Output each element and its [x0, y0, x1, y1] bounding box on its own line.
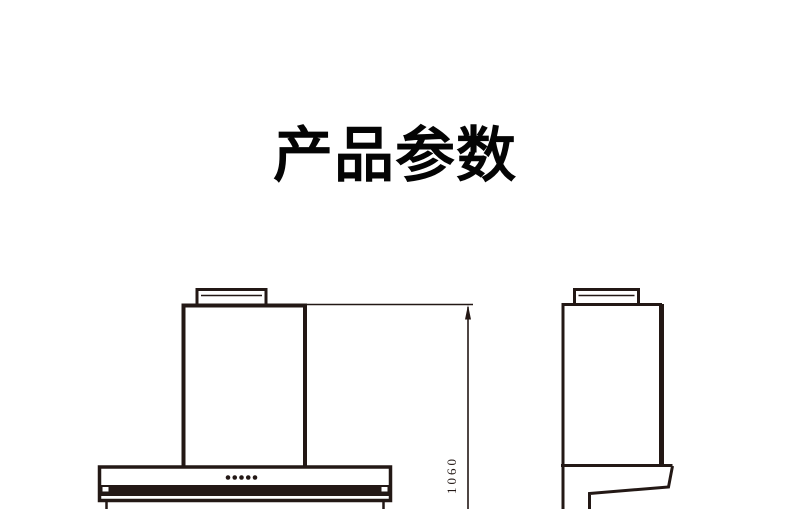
range-hood-side-view	[561, 290, 673, 509]
side-hood-front-profile	[590, 466, 673, 509]
product-parameters-section: 产品参数	[0, 0, 790, 509]
front-glass-strip-left-notch	[103, 487, 109, 492]
control-button-dot	[239, 475, 244, 480]
front-glass-strip-right-notch	[382, 487, 388, 492]
control-button-dot	[253, 475, 258, 480]
control-button-dot	[226, 475, 231, 480]
front-chimney-duct	[184, 306, 306, 468]
front-glass-strip	[101, 485, 389, 496]
range-hood-front-view	[100, 290, 391, 509]
dimension-arrow-up-icon	[465, 305, 471, 320]
range-hood-dimension-drawing: 1060	[0, 0, 790, 509]
control-button-dot	[232, 475, 237, 480]
control-button-dot	[246, 475, 251, 480]
side-chimney-duct	[563, 305, 661, 466]
dimension-value-label: 1060	[444, 456, 459, 494]
